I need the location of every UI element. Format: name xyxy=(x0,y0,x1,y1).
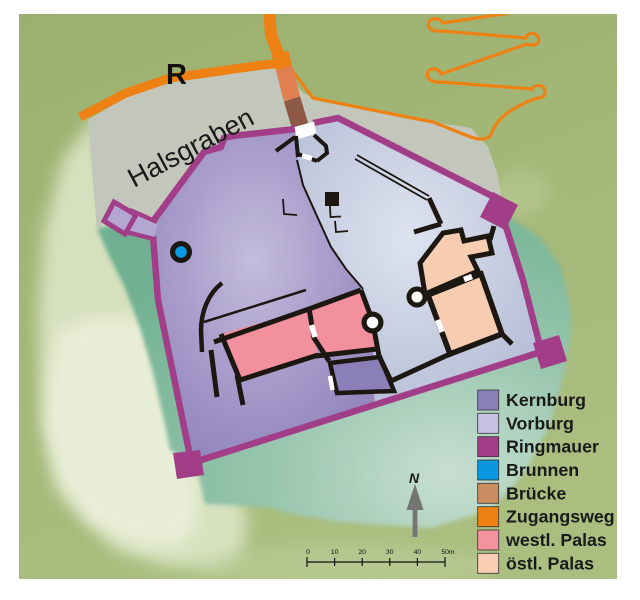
svg-text:30: 30 xyxy=(386,549,394,556)
svg-text:Brunnen: Brunnen xyxy=(506,460,579,480)
svg-text:10: 10 xyxy=(331,549,339,556)
svg-text:Brücke: Brücke xyxy=(506,483,566,503)
svg-text:N: N xyxy=(409,470,420,486)
svg-text:Vorburg: Vorburg xyxy=(506,413,574,433)
svg-text:40: 40 xyxy=(414,549,422,556)
svg-text:20: 20 xyxy=(358,549,366,556)
svg-text:R: R xyxy=(166,59,187,91)
svg-text:östl. Palas: östl. Palas xyxy=(506,553,594,573)
svg-text:0: 0 xyxy=(306,549,310,556)
svg-text:50m: 50m xyxy=(441,549,455,556)
svg-text:westl. Palas: westl. Palas xyxy=(505,530,607,550)
svg-text:Zugangsweg: Zugangsweg xyxy=(506,507,615,527)
svg-text:Ringmauer: Ringmauer xyxy=(506,437,599,457)
svg-text:Kernburg: Kernburg xyxy=(506,390,586,410)
